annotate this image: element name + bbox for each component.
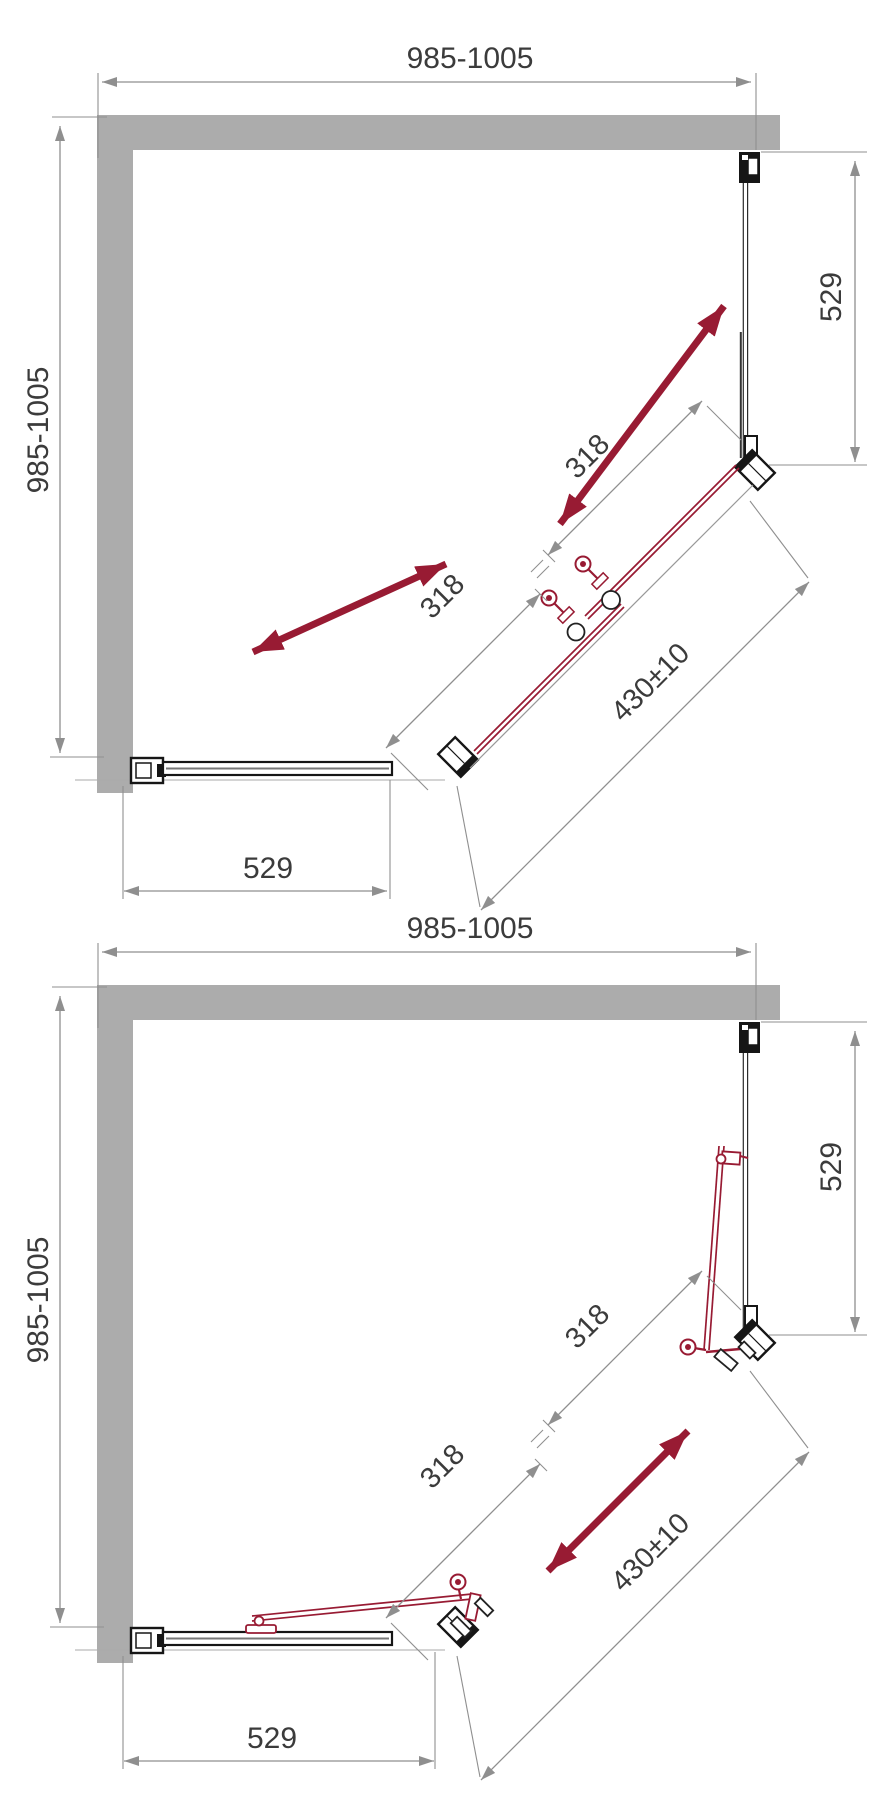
door-slide-arrow-upper: [560, 306, 724, 524]
dim-label-diagonal: 430±10: [605, 1507, 696, 1598]
diagram-doors-closed: 985-1005 985-1005 529 529 318 318 430±10: [22, 42, 867, 910]
dimension-lines: [60, 82, 855, 910]
dimension-extension-lines: [50, 73, 867, 907]
wall-top: [97, 985, 780, 1020]
dim-label-panel-right: 529: [815, 1142, 848, 1192]
dim-label-door-lower: 318: [414, 1438, 471, 1495]
corner-post-bottom-left: [438, 737, 478, 777]
dim-label-depth-left: 985-1005: [22, 367, 55, 494]
dim-door-upper: [548, 1271, 702, 1425]
door-slide-arrow-lower: [253, 564, 446, 652]
wall-top: [97, 115, 780, 150]
wall-left: [97, 115, 133, 793]
technical-drawing-sheet: 985-1005 985-1005 529 529 318 318 430±10: [0, 0, 882, 1800]
dim-label-panel-right: 529: [815, 272, 848, 322]
dimension-extension-lines: [50, 943, 867, 1777]
fixed-panel-bottom: [131, 758, 392, 783]
sliding-door-lower: [474, 604, 624, 754]
walls: [75, 115, 780, 793]
dim-label-width-top: 985-1005: [407, 42, 534, 75]
door-handle-knob: [542, 591, 575, 624]
dim-label-door-upper: 318: [559, 428, 616, 485]
door-roller: [602, 591, 620, 609]
dim-diagonal: [481, 1452, 809, 1780]
fixed-panel-right: [739, 152, 760, 460]
door-hinge-hardware: [706, 1342, 755, 1371]
dim-diagonal: [481, 582, 809, 910]
dim-label-panel-bottom: 529: [243, 852, 293, 885]
dim-label-width-top: 985-1005: [407, 912, 534, 945]
door-track: [470, 485, 753, 768]
dim-label-diagonal: 430±10: [605, 637, 696, 728]
dim-door-upper: [548, 401, 702, 555]
wall-left: [97, 985, 133, 1663]
door-lower-open: [246, 1575, 493, 1638]
dim-label-panel-bottom: 529: [247, 1722, 297, 1755]
shower-enclosure-plan-drawing: 985-1005 985-1005 529 529 318 318 430±10: [0, 0, 882, 1800]
dim-label-depth-left: 985-1005: [22, 1237, 55, 1364]
door-handle-knob: [576, 557, 609, 590]
door-roller: [568, 624, 585, 641]
fixed-panel-right: [739, 1022, 760, 1330]
sliding-doors-closed: [470, 465, 753, 768]
dim-door-lower: [386, 594, 540, 748]
diagram-doors-open: 985-1005 985-1005 529 529 318 318 430±10: [22, 912, 867, 1780]
door-handle-knob: [681, 1340, 707, 1355]
dim-label-door-upper: 318: [559, 1298, 616, 1355]
walls: [75, 985, 780, 1663]
